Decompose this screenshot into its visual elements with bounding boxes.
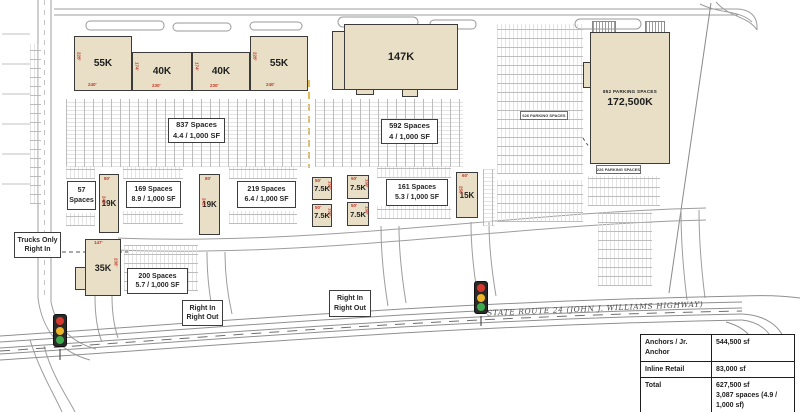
building-35k: 35K bbox=[85, 239, 121, 296]
building-40k-2: 40K bbox=[192, 52, 250, 91]
dimension-label: 80' bbox=[104, 177, 110, 182]
parking-ratio: 4 / 1,000 SF bbox=[389, 132, 430, 142]
dimension-label: 250' bbox=[458, 186, 463, 195]
parking-tag-text: 226 PARKING SPACES bbox=[597, 168, 640, 172]
dimension-label: 150' bbox=[327, 208, 332, 217]
parking-tag-226: 226 PARKING SPACES bbox=[596, 165, 641, 174]
parking-strip bbox=[66, 213, 95, 226]
building-15k: 15K bbox=[456, 172, 478, 218]
spaces-count: 592 Spaces bbox=[389, 121, 430, 131]
parking-block-southeast bbox=[598, 212, 652, 286]
signal-poles bbox=[60, 316, 481, 360]
dimension-label: 150' bbox=[327, 181, 332, 190]
area-summary-table: Anchors / Jr. Anchor 544,500 sf Inline R… bbox=[640, 334, 795, 412]
anchor-parking-spaces-label: 852 PARKING SPACES bbox=[603, 89, 657, 94]
parking-ratio: 5.3 / 1,000 SF bbox=[395, 193, 439, 202]
traffic-signal-icon bbox=[53, 314, 67, 347]
row-value: 544,500 sf bbox=[711, 335, 794, 361]
table-row: Anchors / Jr. Anchor 544,500 sf bbox=[641, 335, 794, 361]
dimension-label: 174' bbox=[134, 62, 139, 71]
spaces-count: 837 Spaces bbox=[176, 120, 217, 130]
adjacent-lot-lines bbox=[2, 34, 30, 184]
parking-label-169-spaces: 169 Spaces 8.9 / 1,000 SF bbox=[126, 181, 181, 208]
spaces-count: 161 Spaces bbox=[398, 183, 436, 192]
signal-yellow-lamp bbox=[477, 294, 485, 302]
spaces-count: 57 bbox=[78, 186, 86, 195]
dimension-label: 238' bbox=[113, 258, 118, 267]
dimension-label: 228' bbox=[252, 52, 257, 61]
dimension-label: 230' bbox=[152, 84, 161, 89]
parking-ratio: 6.4 / 1,000 SF bbox=[245, 195, 289, 204]
building-label: 35K bbox=[95, 263, 112, 273]
sign-right-in-right-out-center: Right In Right Out bbox=[329, 290, 371, 317]
dimension-label: 60' bbox=[462, 174, 468, 179]
parking-label-592-spaces: 592 Spaces 4 / 1,000 SF bbox=[381, 119, 438, 144]
parking-strip bbox=[66, 166, 95, 179]
parking-strip bbox=[377, 206, 451, 219]
building-label: 147K bbox=[388, 51, 414, 63]
dimension-label: 50' bbox=[351, 204, 357, 209]
parking-strip bbox=[377, 166, 451, 178]
dimension-label: 242' bbox=[101, 196, 106, 205]
dimension-label: 240' bbox=[88, 83, 97, 88]
signal-green-lamp bbox=[56, 336, 64, 344]
spaces-count: 219 Spaces bbox=[247, 185, 285, 194]
building-label: 172,500K bbox=[607, 96, 653, 108]
dimension-label: 50' bbox=[315, 179, 321, 184]
signal-red-lamp bbox=[56, 317, 64, 325]
dimension-label: 228' bbox=[76, 52, 81, 61]
dimension-label: 150' bbox=[364, 179, 369, 188]
dimension-label: 242' bbox=[201, 198, 206, 207]
building-40k-1: 40K bbox=[132, 52, 192, 91]
parking-field-east-lower bbox=[497, 180, 583, 222]
parking-field-east bbox=[497, 24, 583, 174]
building-label: 40K bbox=[212, 66, 230, 77]
parking-tag-text: 626 PARKING SPACES bbox=[522, 114, 565, 118]
sign-right-in-right-out-west: Right In Right Out bbox=[182, 300, 223, 326]
signal-red-lamp bbox=[477, 284, 485, 292]
row-value: 627,500 sf 3,087 spaces (4.9 / 1,000 sf) bbox=[711, 378, 794, 412]
building-147k: 147K bbox=[344, 24, 458, 90]
building-label: 55K bbox=[270, 58, 288, 69]
signal-green-lamp bbox=[477, 303, 485, 311]
parking-strip bbox=[123, 166, 183, 179]
sign-line: Right Out bbox=[334, 304, 366, 313]
dimension-label: 230' bbox=[210, 84, 219, 89]
parking-strip bbox=[229, 211, 297, 224]
spaces-count: 200 Spaces bbox=[138, 272, 176, 281]
dimension-label: 147' bbox=[94, 241, 103, 246]
building-55k-east: 55K bbox=[250, 36, 308, 91]
table-row: Inline Retail 83,000 sf bbox=[641, 361, 794, 378]
row-label: Anchors / Jr. Anchor bbox=[641, 335, 711, 361]
building-label: 55K bbox=[94, 58, 112, 69]
west-edge-parking-strip bbox=[30, 44, 41, 204]
row-label: Inline Retail bbox=[641, 362, 711, 378]
parking-label-837-spaces: 837 Spaces 4.4 / 1,000 SF bbox=[168, 118, 225, 143]
sign-line: Right In bbox=[189, 304, 215, 313]
building-label: 40K bbox=[153, 66, 171, 77]
parking-label-219-spaces: 219 Spaces 6.4 / 1,000 SF bbox=[237, 181, 296, 208]
sign-line: Right In bbox=[337, 294, 363, 303]
parking-ratio: 5.7 / 1,000 SF bbox=[136, 281, 180, 290]
dimension-label: 240' bbox=[266, 83, 275, 88]
row-value: 83,000 sf bbox=[711, 362, 794, 378]
parking-field-below-anchor bbox=[588, 176, 660, 206]
spaces-count: 169 Spaces bbox=[134, 185, 172, 194]
site-plan-canvas: 55K 40K 40K 55K 147K 19K 19K 7.5K 7.5K 7… bbox=[0, 0, 800, 412]
parking-strip bbox=[229, 166, 297, 179]
parking-label-200-spaces: 200 Spaces 5.7 / 1,000 SF bbox=[127, 268, 188, 294]
traffic-signal-icon bbox=[474, 281, 488, 314]
sign-line: Trucks Only bbox=[17, 236, 57, 245]
dimension-label: 150' bbox=[364, 206, 369, 215]
dimension-label: 80' bbox=[205, 177, 211, 182]
parking-ratio: 8.9 / 1,000 SF bbox=[132, 195, 176, 204]
building-55k-west: 55K bbox=[74, 36, 132, 91]
east-boundary-line bbox=[669, 3, 711, 293]
signal-yellow-lamp bbox=[56, 327, 64, 335]
row-label: Total bbox=[641, 378, 711, 412]
building-anchor-172500: 852 PARKING SPACES 172,500K bbox=[590, 32, 670, 164]
dimension-label: 174' bbox=[194, 62, 199, 71]
parking-label-161-spaces: 161 Spaces 5.3 / 1,000 SF bbox=[386, 179, 448, 206]
parking-label-57-spaces: 57 Spaces bbox=[67, 181, 96, 210]
spaces-word: Spaces bbox=[69, 196, 94, 205]
parking-strip bbox=[483, 169, 495, 226]
parking-ratio: 4.4 / 1,000 SF bbox=[173, 131, 220, 141]
parking-tag-626: 626 PARKING SPACES bbox=[520, 111, 568, 120]
dimension-label: 50' bbox=[315, 206, 321, 211]
parking-strip bbox=[123, 211, 183, 224]
table-row: Total 627,500 sf 3,087 spaces (4.9 / 1,0… bbox=[641, 377, 794, 412]
sign-line: Right In bbox=[24, 245, 50, 254]
sign-line: Right Out bbox=[187, 313, 219, 322]
sign-trucks-only-right-in: Trucks Only Right In bbox=[14, 232, 61, 258]
dimension-label: 50' bbox=[351, 177, 357, 182]
